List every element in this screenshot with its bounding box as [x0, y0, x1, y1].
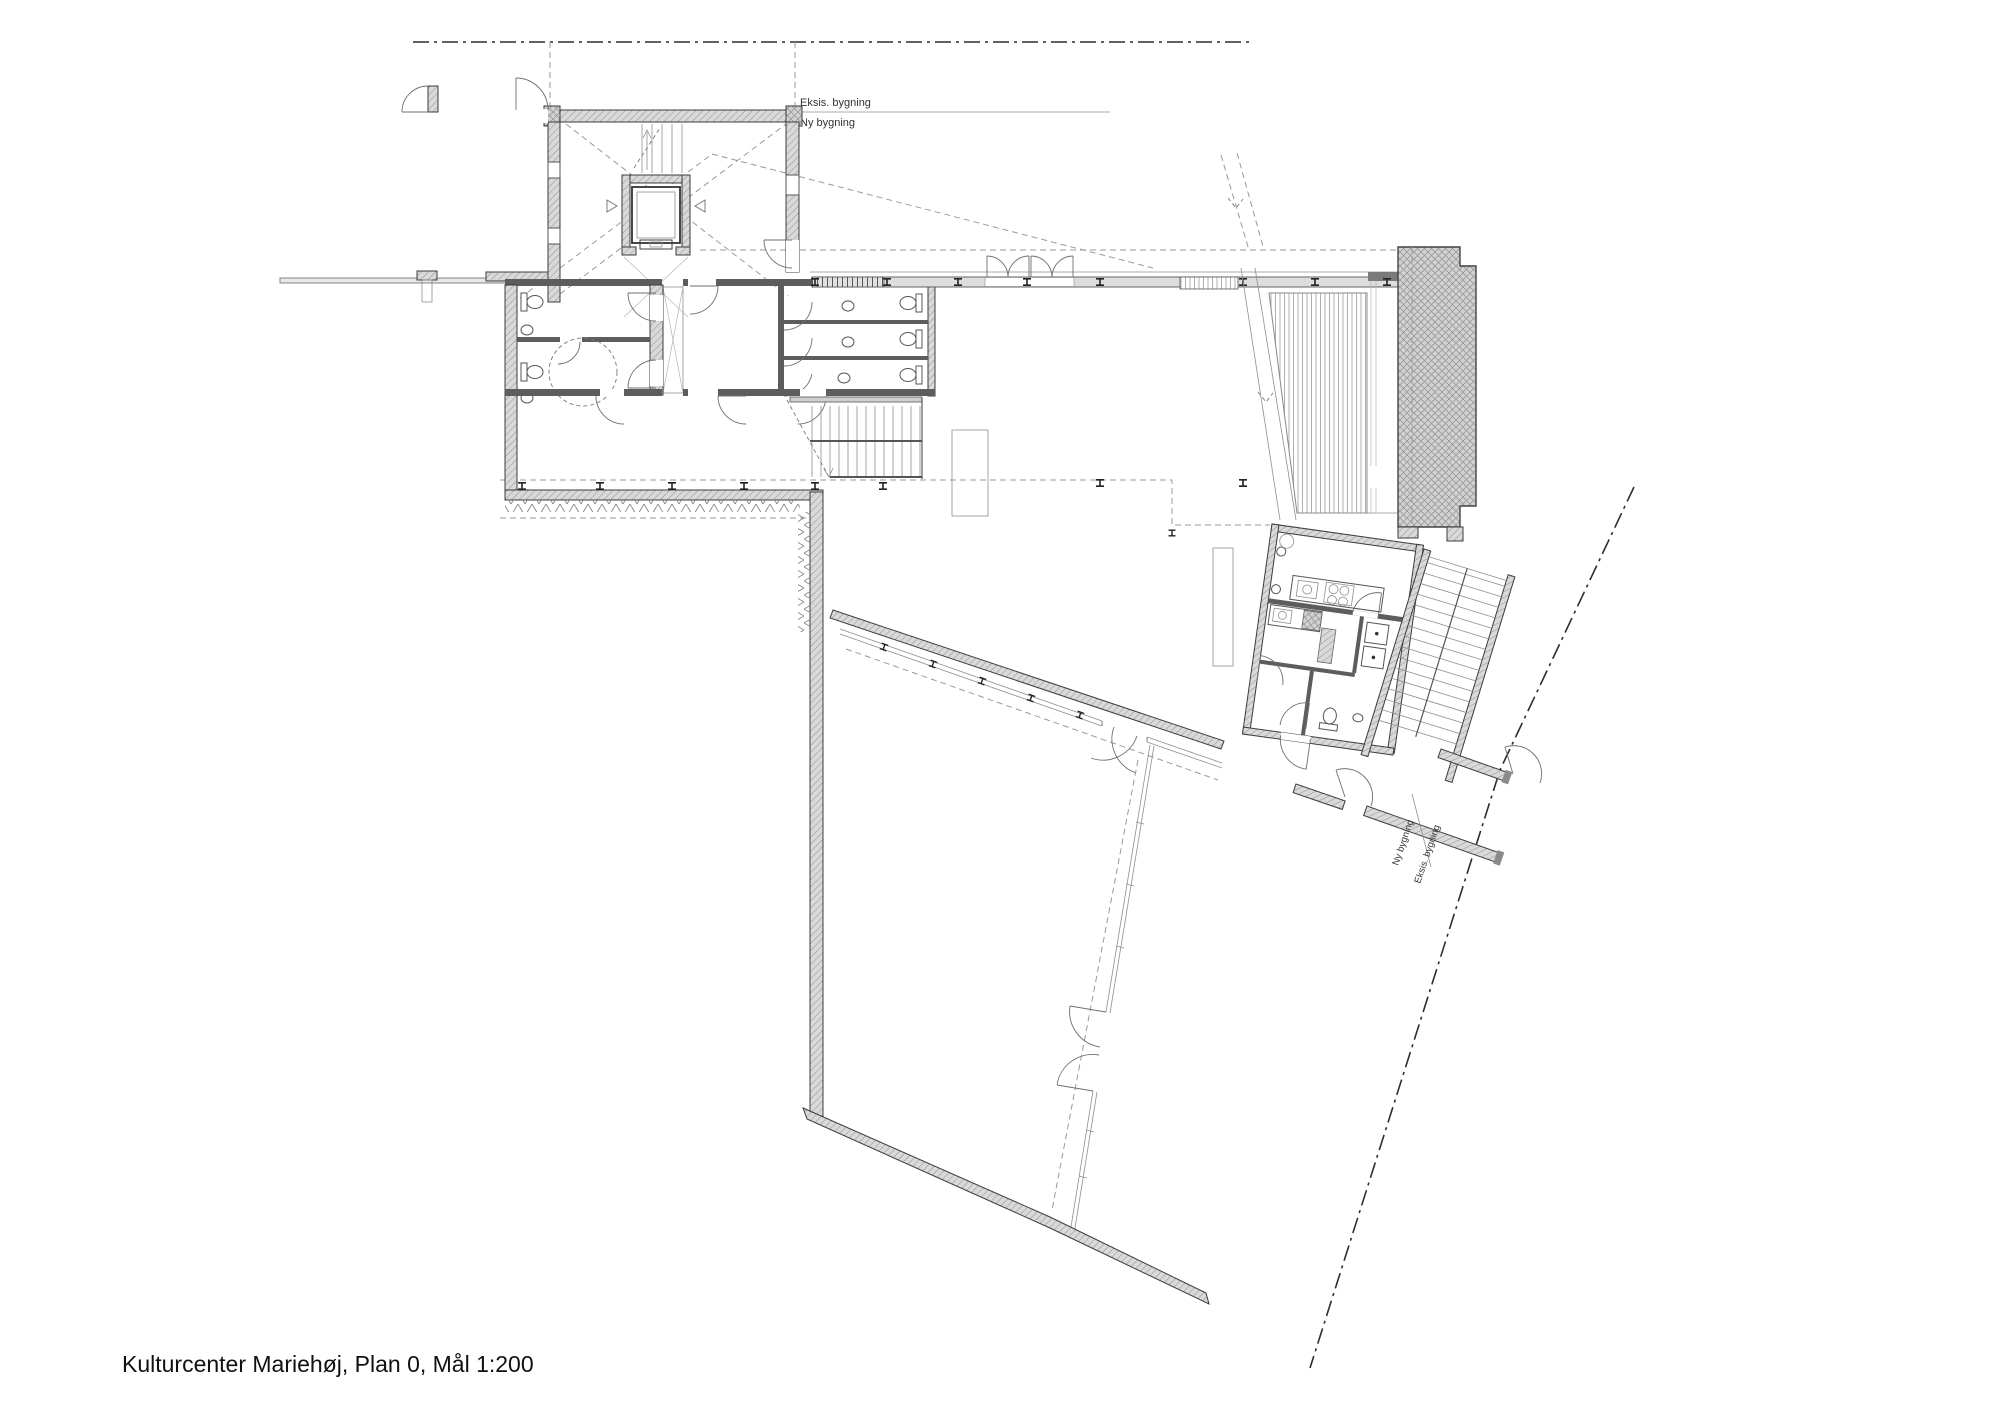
bench: [1213, 548, 1233, 666]
sanitary-block-south-wall: [505, 389, 935, 424]
lintel: [1368, 272, 1398, 281]
south-wing: [798, 492, 1224, 1304]
elevator-car: [632, 187, 680, 243]
insulation-zigzag: [505, 500, 800, 512]
sink-icon: [842, 337, 854, 347]
south-wall: [803, 1108, 1209, 1304]
stair-arrow: [824, 468, 833, 477]
entrance-door-north: [516, 78, 548, 123]
hall: [1241, 268, 1397, 520]
label-new-building-top: Ny bygning: [800, 117, 855, 129]
toilet-wing-east: [778, 285, 935, 396]
lobby-door-east: [764, 240, 799, 272]
toilet-wing-west: [505, 279, 663, 498]
zone-south-wall: [505, 480, 1247, 536]
elevator-direction-marker-left: [607, 200, 617, 212]
site-boundary-line-east: [1310, 487, 1634, 1368]
link-to-existing: Ny bygning Eksis. bygning: [1293, 746, 1542, 885]
insulation-zigzag: [798, 512, 810, 632]
sink-icon: [1271, 584, 1281, 594]
bridge-grate: [812, 277, 884, 287]
floor-plan-drawing: Eksis. bygning Ny bygning: [0, 0, 2000, 1414]
label-existing-building-top: Eksis. bygning: [800, 97, 871, 109]
upper-stair: [634, 124, 682, 173]
sheet-title: Kulturcenter Mariehøj, Plan 0, Mål 1:200: [122, 1351, 534, 1377]
hall-striped-floor: [1269, 293, 1367, 513]
toilet-icon: [900, 366, 922, 384]
site-boundary: [413, 42, 1634, 1368]
sink-icon: [842, 301, 854, 311]
door-small-northwest: [402, 86, 438, 112]
interior-partition: [1052, 745, 1154, 1234]
north-wall: [548, 110, 800, 122]
elevator: [607, 175, 705, 255]
sink-icon: [838, 373, 850, 383]
main-entrance-double-doors: [987, 256, 1073, 277]
elevator-direction-marker-right: [695, 200, 705, 212]
wing-double-door: [1091, 721, 1147, 773]
north-facade: [810, 256, 1400, 289]
west-wall: [810, 492, 823, 1116]
toilet-icon: [521, 363, 543, 381]
toilet-icon: [521, 293, 543, 311]
entrance-block: [280, 78, 1247, 536]
floor-plan-sheet: Eksis. bygning Ny bygning: [0, 0, 2000, 1414]
toilet-icon: [900, 330, 922, 348]
building-boundary-top: Eksis. bygning Ny bygning: [790, 97, 1110, 129]
existing-building-block: [1398, 247, 1476, 541]
west-wall: [548, 122, 560, 302]
sink-icon: [1352, 713, 1363, 722]
facade-band: [812, 277, 1398, 287]
sink-icon: [521, 325, 533, 335]
bench: [952, 430, 988, 516]
louver-strip: [1180, 277, 1238, 289]
toilet-icon: [1319, 707, 1340, 731]
wing-facade-band: [830, 610, 1224, 749]
toilet-icon: [900, 294, 922, 312]
main-stair: [787, 397, 922, 479]
